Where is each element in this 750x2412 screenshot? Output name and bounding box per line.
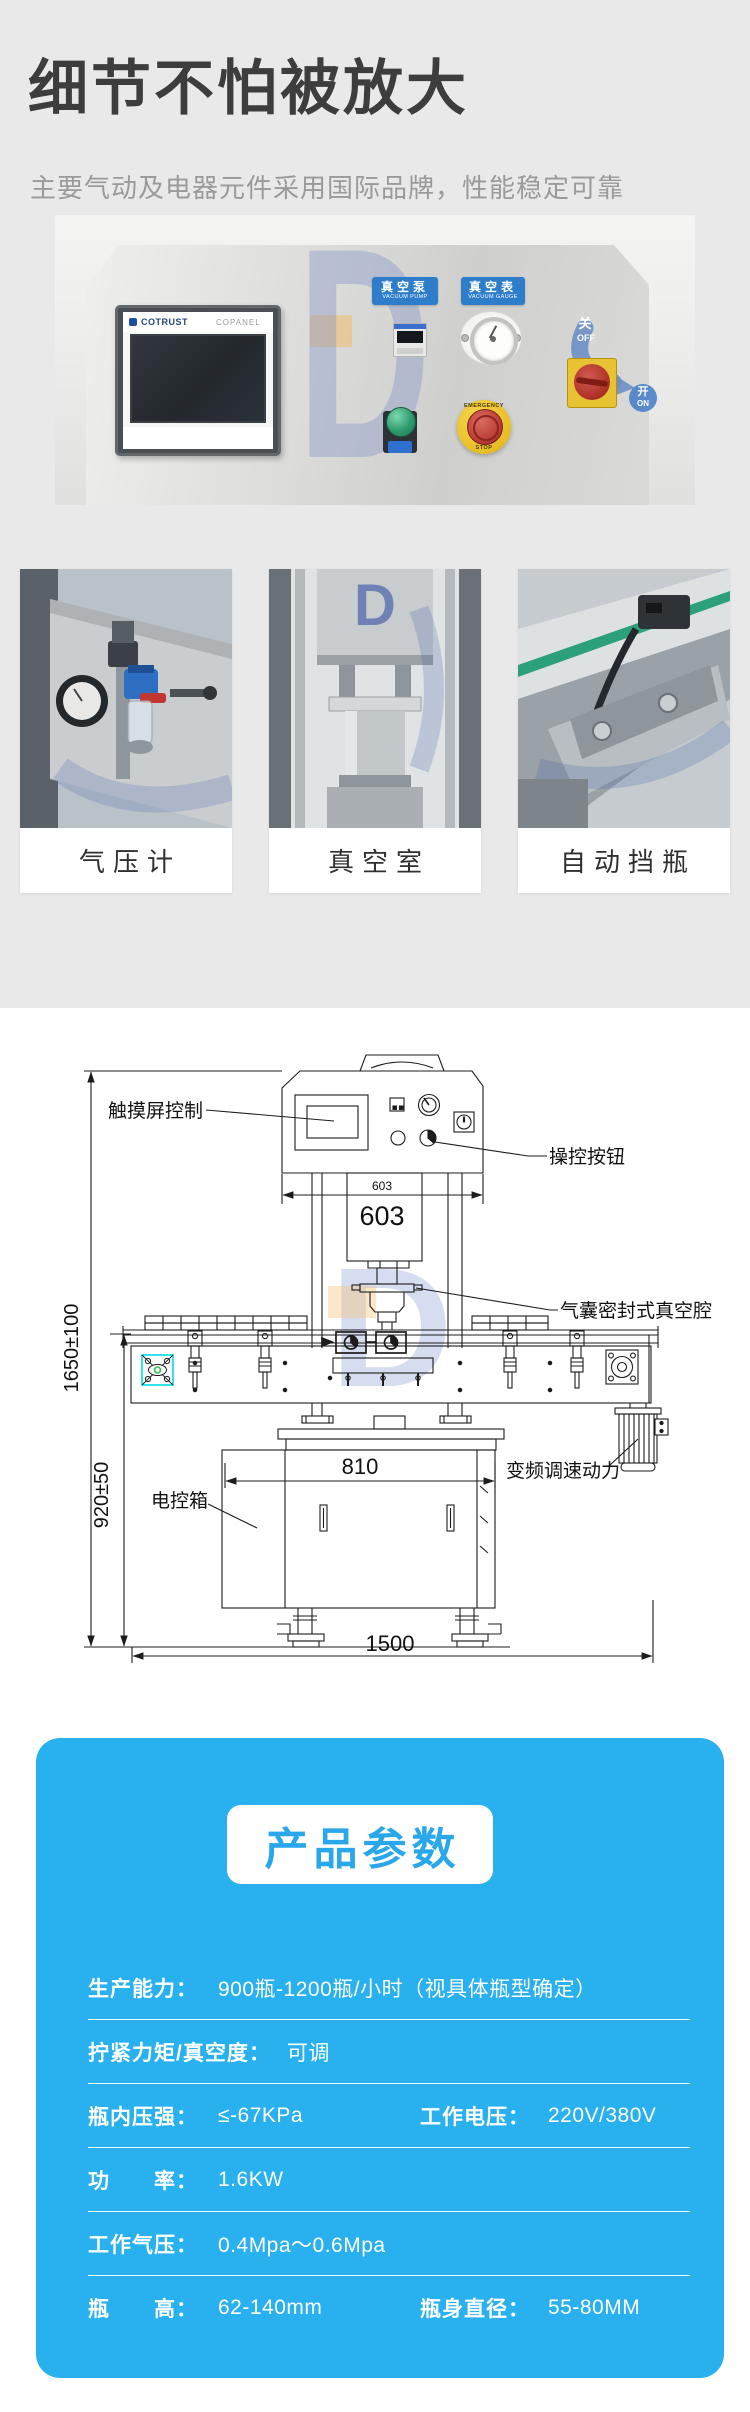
spec-row-pressure-voltage: 瓶内压强： ≤-67KPa 工作电压： 220V/380V: [88, 2084, 690, 2148]
callout-control-buttons: 操控按钮: [549, 1146, 625, 1168]
callout-vacuum-chamber: 气囊密封式真空腔: [560, 1300, 712, 1322]
technical-drawing: D: [30, 1018, 720, 1666]
hmi-brand-text: COTRUST: [141, 317, 188, 327]
brand-watermark: D: [297, 215, 458, 503]
specs-title-badge: 产品参数: [227, 1805, 493, 1884]
dim-cabinet-width: 810: [342, 1454, 379, 1479]
start-button-tag: [388, 441, 412, 453]
card-caption: 气压计: [20, 828, 232, 893]
control-panel-photo: D COTRUST COPANEL 真空泵 VACUUM PUMP 真空表 VA…: [55, 215, 695, 505]
spec-value: 0.4Mpa～0.6Mpa: [218, 2229, 386, 2259]
callout-vfd-drive: 变频调速动力: [506, 1460, 620, 1482]
spec-label: 生产能力：: [88, 1973, 218, 2003]
spec-label: 瓶 高：: [88, 2293, 218, 2323]
bottle-stop-photo: [518, 569, 730, 828]
vacuum-gauge-label: 真空表 VACUUM GAUGE: [461, 277, 525, 305]
hmi-touchscreen: COTRUST COPANEL: [115, 305, 281, 456]
product-specs-panel: 产品参数 生产能力： 900瓶-1200瓶/小时（视具体瓶型确定） 拧紧力矩/真…: [36, 1738, 724, 2378]
highlight-plate: [142, 1355, 173, 1385]
digital-vacuum-controller: [393, 323, 427, 357]
spec-value: 1.6KW: [218, 2168, 284, 2192]
vacuum-gauge-dial: [470, 317, 518, 365]
page-subtitle: 主要气动及电器元件采用国际品牌，性能稳定可靠: [30, 168, 730, 205]
pressure-gauge-photo: [20, 569, 232, 828]
spec-label: 瓶身直径：: [420, 2293, 548, 2323]
feature-card-vacuum-chamber: D 真空室: [269, 569, 481, 893]
spec-label: 拧紧力矩/真空度：: [88, 2037, 271, 2067]
spec-row-power: 功 率： 1.6KW: [88, 2148, 690, 2212]
callout-touchscreen: 触摸屏控制: [108, 1100, 203, 1122]
vacuum-pump-label: 真空泵 VACUUM PUMP: [372, 277, 438, 305]
svg-text:D: D: [354, 573, 396, 638]
dim-head-width-small: 603: [372, 1179, 392, 1193]
specs-table: 生产能力： 900瓶-1200瓶/小时（视具体瓶型确定） 拧紧力矩/真空度： 可…: [88, 1956, 690, 2339]
dim-head-width: 603: [359, 1201, 404, 1231]
feature-card-bottle-stop: 自动挡瓶: [518, 569, 730, 893]
spec-label: 瓶内压强：: [88, 2101, 218, 2131]
callout-electric-box: 电控箱: [151, 1490, 208, 1512]
hmi-screen: [130, 334, 266, 423]
card-caption: 真空室: [269, 828, 481, 893]
spec-value: ≤-67KPa: [218, 2104, 303, 2128]
hmi-brand-strip: COTRUST COPANEL: [123, 312, 273, 332]
spec-label: 功 率：: [88, 2165, 218, 2195]
spec-row-capacity: 生产能力： 900瓶-1200瓶/小时（视具体瓶型确定）: [88, 1956, 690, 2020]
dim-total-width: 1500: [366, 1631, 415, 1656]
spec-row-air-pressure: 工作气压： 0.4Mpa～0.6Mpa: [88, 2212, 690, 2276]
spec-value: 62-140mm: [218, 2296, 322, 2320]
spec-value: 900瓶-1200瓶/小时（视具体瓶型确定）: [218, 1973, 597, 2003]
hmi-bottom-strip: [123, 427, 273, 449]
hmi-model-text: COPANEL: [216, 318, 261, 327]
page-title: 细节不怕被放大: [28, 40, 728, 127]
spec-value: 可调: [287, 2037, 330, 2067]
top-section: 细节不怕被放大 主要气动及电器元件采用国际品牌，性能稳定可靠 D COTRUST…: [0, 0, 750, 1008]
spec-row-bottle-size: 瓶 高： 62-140mm 瓶身直径： 55-80MM: [88, 2276, 690, 2339]
start-button: [386, 407, 416, 437]
spec-value: 220V/380V: [548, 2104, 656, 2128]
feature-card-pressure-gauge: 气压计: [20, 569, 232, 893]
spec-label: 工作电压：: [420, 2101, 548, 2131]
dim-table-height: 920±50: [91, 1462, 113, 1529]
dim-total-height: 1650±100: [61, 1304, 83, 1393]
card-caption: 自动挡瓶: [518, 828, 730, 893]
spec-label: 工作气压：: [88, 2229, 218, 2259]
spec-value: 55-80MM: [548, 2296, 640, 2320]
hmi-brand-logo-icon: [129, 318, 137, 326]
vacuum-chamber-photo: D: [269, 569, 481, 828]
spec-row-torque-vacuum: 拧紧力矩/真空度： 可调: [88, 2020, 690, 2084]
